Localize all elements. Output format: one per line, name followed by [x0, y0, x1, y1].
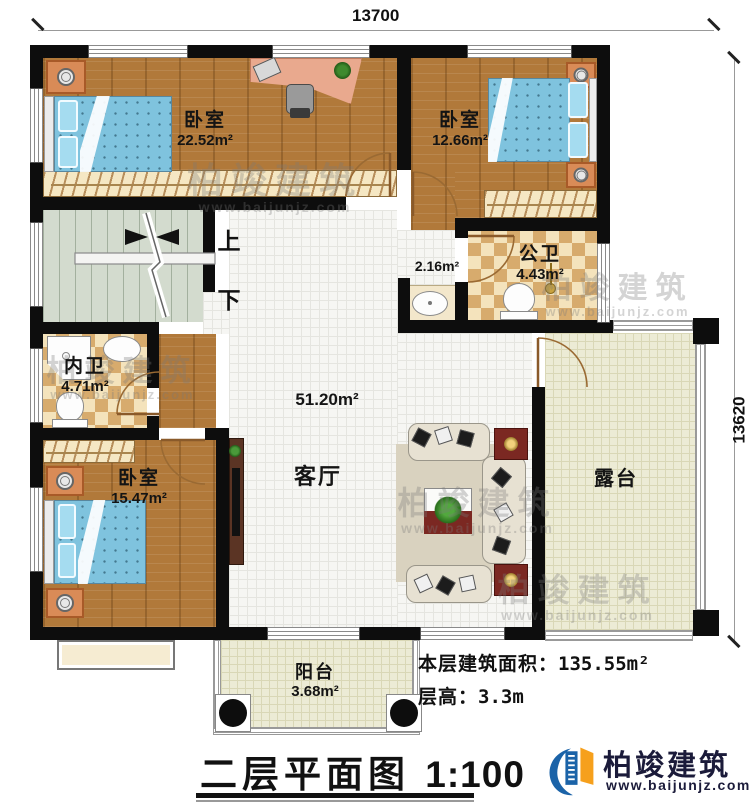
nightstand: [46, 60, 86, 94]
bed-headboard: [44, 500, 54, 584]
terrace-railing: [695, 344, 706, 610]
pillow: [58, 136, 78, 168]
living-room-area-label: 51.20m²: [295, 390, 358, 410]
logo-icon: [543, 740, 599, 798]
wardrobe-rod: [51, 184, 389, 186]
wall: [232, 627, 267, 640]
right-dimension-line: [734, 58, 735, 644]
wall: [398, 278, 410, 333]
wall: [30, 428, 155, 440]
bed-headboard: [44, 96, 54, 172]
right-dimension-label: 13620: [730, 396, 750, 443]
private-bathroom-label: 内卫 4.71m²: [61, 356, 109, 396]
sliding-door: [267, 627, 360, 640]
top-dimension-label: 13700: [352, 6, 399, 26]
toilet-tank: [500, 311, 538, 320]
window: [30, 348, 43, 423]
nightstand: [46, 588, 84, 618]
floor-height-value: 3.3m: [478, 686, 524, 708]
floor-area-line: 本层建筑面积：135.55m²: [418, 648, 650, 681]
dimension-tick: [31, 18, 44, 31]
room-name: 露台: [594, 468, 638, 492]
room-name: 卧室: [432, 110, 488, 132]
logo-website: www.baijunjz.com: [606, 777, 750, 793]
wall: [360, 627, 420, 640]
balcony-column: [219, 699, 247, 727]
room-area: 4.43m²: [516, 266, 564, 284]
terrace-column: [693, 318, 719, 344]
plan-title: 二层平面图 1:100: [200, 744, 525, 798]
lamp-icon: [56, 594, 74, 612]
wardrobe: [43, 440, 135, 463]
toilet-tank: [52, 419, 88, 428]
stairs: [43, 208, 203, 322]
room-name: 客厅: [294, 464, 342, 490]
pillow: [58, 100, 78, 132]
end-table: [494, 564, 528, 596]
wall: [455, 282, 468, 333]
bedroom-bottom-left-label: 卧室 15.47m²: [111, 468, 167, 508]
wall: [455, 218, 468, 238]
lamp-icon: [574, 168, 589, 183]
window: [88, 45, 188, 58]
toilet-bowl: [56, 392, 84, 422]
floor-area-label: 本层建筑面积：: [418, 654, 558, 675]
pillow: [568, 122, 588, 158]
window: [420, 627, 505, 640]
pillow: [58, 543, 76, 578]
tv: [232, 468, 240, 536]
wall: [203, 210, 215, 292]
plan-title-text: 二层平面图: [200, 754, 410, 795]
wall: [30, 627, 232, 640]
lamp-icon: [57, 68, 75, 86]
stairs-up-label: 上: [218, 222, 241, 256]
end-table: [494, 428, 528, 460]
bedroom-top-left-label: 卧室 22.52m²: [177, 110, 233, 150]
plant: [434, 496, 462, 524]
table-medallion: [504, 437, 518, 451]
floor-height-label: 层高：: [418, 687, 478, 708]
lamp-icon: [574, 68, 589, 83]
nightstand: [46, 466, 84, 496]
window: [30, 88, 43, 163]
table-medallion: [504, 573, 518, 587]
wall: [147, 322, 159, 388]
balcony-label: 阳台 3.68m²: [291, 662, 339, 701]
bay-window: [57, 640, 175, 670]
logo-building-orange: [580, 748, 593, 785]
wash-area-label: 2.16m²: [415, 258, 459, 275]
top-dimension-line: [38, 30, 714, 31]
room-area: 15.47m²: [111, 490, 167, 508]
wall: [460, 218, 597, 231]
lamp-icon: [56, 472, 74, 490]
wall: [30, 322, 159, 334]
title-underline: [196, 793, 474, 798]
wall: [205, 428, 229, 440]
room-name: 内卫: [61, 356, 109, 378]
dimension-tick: [707, 18, 720, 31]
window: [597, 243, 610, 323]
pillow: [58, 504, 76, 539]
living-room-label: 客厅: [294, 464, 342, 490]
wall: [397, 58, 411, 170]
hallway-floor: [159, 334, 216, 428]
wall: [216, 440, 229, 627]
cushion: [459, 575, 477, 593]
plant: [229, 445, 241, 457]
desk-chair-base: [290, 108, 310, 118]
room-name: 阳台: [291, 662, 339, 683]
wardrobe: [484, 190, 597, 218]
bedroom-top-right-entry-floor: [411, 170, 455, 232]
terrace-railing: [613, 320, 693, 331]
window: [272, 45, 370, 58]
room-name: 卧室: [177, 110, 233, 132]
floor-info: 本层建筑面积：135.55m² 层高：3.3m: [418, 648, 650, 715]
terrace-label: 露台: [594, 468, 638, 492]
window: [30, 222, 43, 307]
wardrobe-rod: [46, 452, 132, 454]
toilet-bowl: [503, 283, 535, 314]
room-area: 12.66m²: [432, 132, 488, 150]
room-name: 公卫: [516, 244, 564, 266]
window: [467, 45, 572, 58]
wall: [505, 627, 545, 640]
room-area: 22.52m²: [177, 132, 233, 150]
wall: [532, 387, 545, 627]
public-bathroom-label: 公卫 4.43m²: [516, 244, 564, 284]
title-underline-thin: [196, 800, 474, 802]
wall: [229, 197, 346, 210]
terrace-column: [693, 610, 719, 636]
basin-drain: [428, 301, 432, 305]
room-name: 卧室: [111, 468, 167, 490]
floor-height-line: 层高：3.3m: [418, 681, 650, 714]
plan-scale: 1:100: [425, 754, 525, 795]
wardrobe: [43, 170, 397, 197]
company-logo: 柏竣建筑 www.baijunjz.com: [543, 740, 748, 800]
stairs-down-label: 下: [218, 281, 241, 315]
balcony-column: [390, 699, 418, 727]
plant: [334, 62, 351, 79]
nightstand: [566, 162, 596, 188]
floor-plan-page: { "dimensions": { "top_width": "13700", …: [0, 0, 750, 805]
bed-headboard: [589, 78, 597, 162]
room-area: 51.20m²: [295, 390, 358, 410]
room-area: 3.68m²: [291, 683, 339, 701]
wardrobe-rod: [487, 204, 594, 206]
room-area: 4.71m²: [61, 378, 109, 396]
window: [30, 487, 43, 572]
bedroom-top-right-label: 卧室 12.66m²: [432, 110, 488, 150]
living-room-floor: [229, 210, 397, 627]
pillow: [568, 82, 588, 118]
wall: [30, 197, 229, 210]
floor-area-value: 135.55m²: [558, 653, 650, 675]
terrace-railing: [545, 630, 693, 641]
wall: [398, 320, 613, 333]
room-area: 2.16m²: [415, 258, 459, 275]
